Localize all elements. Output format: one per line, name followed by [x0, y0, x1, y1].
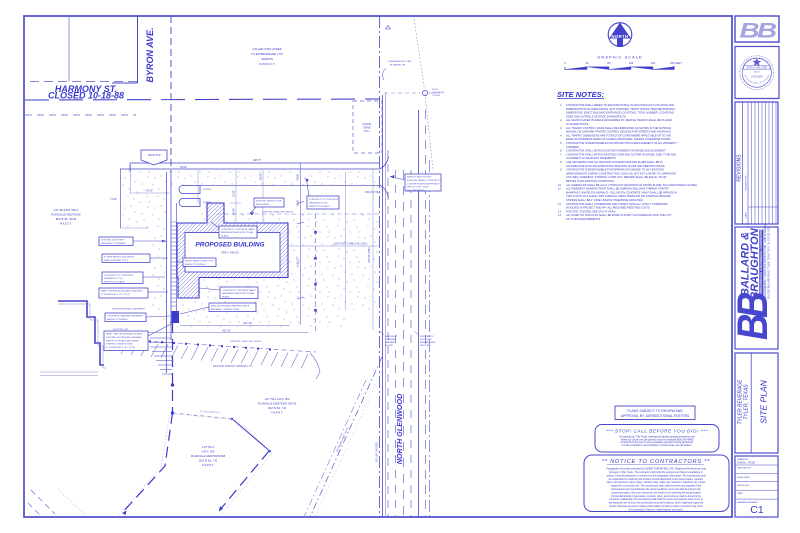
svg-text:REFER TO DETAILS: REFER TO DETAILS: [185, 263, 206, 266]
svg-text:PLAINVILLE ADDITIONS UNIT B: PLAINVILLE ADDITIONS UNIT B: [258, 402, 297, 406]
svg-text:DATE: DATE: [737, 492, 743, 495]
svg-text:BLK B, BL, 500-B: BLK B, BL, 500-B: [56, 217, 77, 221]
svg-text:STRIPE: STRIPE: [203, 189, 211, 191]
svg-text:EXISTING FENCE TO BE: EXISTING FENCE TO BE: [256, 201, 282, 203]
svg-text:PAVEMENT (TYP.): PAVEMENT (TYP.): [104, 277, 123, 280]
svg-text:BETTER THAN EXISTING CONDITION: BETTER THAN EXISTING CONDITIONS.: [566, 179, 615, 183]
svg-text:547.2: 547.2: [364, 131, 370, 133]
svg-text:*** STOP! CALL BEFORE YOU: *** STOP! CALL BEFORE YOU DIG! ***: [606, 429, 708, 434]
svg-text:ALIGNMENT AT ADJACENT PAVEMENT: ALIGNMENT AT ADJACENT PAVEMENTS.: [565, 156, 617, 160]
svg-text:SAWCUT AND TIE INTO: SAWCUT AND TIE INTO: [407, 176, 432, 179]
svg-text:discrepancies are found betwee: discrepancies are found between the actu…: [611, 488, 701, 491]
svg-text:REFER TO DETAILS AND PAINT: REFER TO DETAILS AND PAINT: [106, 339, 139, 342]
svg-text:REQUIREMENTS: REQUIREMENTS: [407, 190, 425, 192]
svg-text:12.: 12.: [558, 202, 562, 206]
svg-text:SIZES AND OUTFALLS OF ROOF DOW: SIZES AND OUTFALLS OF ROOF DOWNSPOUTS.: [566, 114, 627, 118]
svg-text:CONSTRUCT CONCRETE RAMP: CONSTRUCT CONCRETE RAMP: [222, 289, 256, 292]
svg-text:FOR SITE UTILITIES, SEE UTILIT: FOR SITE UTILITIES, SEE UTILITY PLAN.: [566, 209, 616, 213]
svg-text:CALLED 5.952 ACRES: CALLED 5.952 ACRES: [253, 47, 282, 51]
svg-text:CONCRETE DRIVE APPROACH: CONCRETE DRIVE APPROACH: [407, 182, 440, 185]
svg-text:POLE: POLE: [432, 89, 438, 91]
svg-text:PLANS SUBJECT TO REVIEW AND: PLANS SUBJECT TO REVIEW AND: [627, 409, 683, 413]
svg-text:EXISTING PAVING. CONSTRUCT: EXISTING PAVING. CONSTRUCT: [407, 179, 441, 182]
svg-text:142.16': 142.16': [296, 257, 300, 266]
svg-text:CONSTRUCT 6" CONCRETE: CONSTRUCT 6" CONCRETE: [104, 275, 134, 277]
svg-text:ACCORDANCE WITH ARCHITECTURAL: ACCORDANCE WITH ARCHITECTURAL BUILDING P…: [565, 164, 666, 168]
svg-text:CONSTRUCT CONCRETE RAMP: CONSTRUCT CONCRETE RAMP: [221, 228, 255, 231]
svg-text:16.00': 16.00': [296, 199, 300, 206]
svg-text:ALL TRAFFIC DIMENSIONS ARE TO: ALL TRAFFIC DIMENSIONS ARE TO BACK OF CU…: [565, 133, 671, 137]
svg-text:GRAPHIC SCALE: GRAPHIC SCALE: [597, 55, 642, 60]
svg-text:JASON L. ROSS: JASON L. ROSS: [737, 462, 755, 465]
svg-text:T-POLE: T-POLE: [432, 95, 440, 97]
svg-text:120: 120: [629, 61, 634, 65]
svg-text:ALL SIDEWALKS SHALL BE A.D.A.: ALL SIDEWALKS SHALL BE A.D.A. COMPLIANT …: [565, 183, 698, 187]
svg-text:11.: 11.: [558, 187, 562, 191]
svg-text:DRIVE: DRIVE: [363, 128, 370, 130]
svg-text:445.5': 445.5': [253, 158, 262, 162]
svg-text:TWO COATS TO A CLEAN, DRY SURF: TWO COATS TO A CLEAN, DRY SURFACE USING …: [566, 194, 672, 198]
svg-text:PROPOSED 10': PROPOSED 10': [420, 336, 434, 338]
svg-text:TRASH PAD: TRASH PAD: [148, 154, 161, 157]
svg-text:4469/745: 4469/745: [261, 57, 273, 61]
svg-text:FFE = 546.50: FFE = 546.50: [221, 251, 238, 255]
svg-text:GRAVEL: GRAVEL: [362, 123, 372, 126]
svg-text:ALL TRAFFIC CONTROL SIGNS SHAL: ALL TRAFFIC CONTROL SIGNS SHALL BE FABRI…: [565, 126, 672, 130]
svg-text:BLK B, BL, 7-B: BLK B, BL, 7-B: [268, 406, 286, 410]
svg-text:be responsible for confirming: be responsible for confirming the locati…: [609, 478, 704, 481]
svg-text:4.: 4.: [560, 133, 562, 137]
svg-text:14.: 14.: [558, 213, 562, 217]
svg-text:JOHN A. BALLARD: JOHN A. BALLARD: [746, 67, 767, 70]
svg-text:METAL MAZE COVER (TYP): METAL MAZE COVER (TYP): [185, 260, 214, 263]
svg-text:CONTRACTOR SHALL MATCH EXISTIN: CONTRACTOR SHALL MATCH EXISTING PAVEMENT…: [566, 149, 666, 153]
svg-text:REFER TO DETAILS: REFER TO DETAILS: [104, 281, 125, 284]
svg-text:2.: 2.: [559, 118, 562, 122]
svg-text:MARKPAST, WHITE (ON ASPHALT),: MARKPAST, WHITE (ON ASPHALT), YELLOW ON …: [566, 190, 677, 194]
svg-text:433.41': 433.41': [222, 328, 232, 332]
svg-text:4" WIDE REFLECTIVE WHITE: 4" WIDE REFLECTIVE WHITE: [104, 256, 135, 259]
svg-text:LOT 4B S.B.B. 500-A: LOT 4B S.B.B. 500-A: [54, 208, 79, 212]
svg-text:IN GUARD POSTS.: IN GUARD POSTS.: [566, 122, 589, 126]
svg-text:EXISTING CURB LINE (TYP.): EXISTING CURB LINE (TYP.): [334, 243, 367, 246]
svg-text:DATE: DATE: [744, 212, 747, 218]
svg-text:PER PLAT: PER PLAT: [420, 344, 430, 347]
svg-text:UTILITIES, PAVEMENT, STRIPING,: UTILITIES, PAVEMENT, STRIPING, CURB, ETC…: [566, 175, 667, 179]
svg-text:Topographic information provid: Topographic information provided by SUMM…: [606, 468, 706, 471]
svg-text:CONTRACTOR SHALL MATCH EXISTIN: CONTRACTOR SHALL MATCH EXISTING CURB AND…: [566, 152, 676, 156]
svg-text:10.: 10.: [558, 183, 562, 187]
svg-text:A PROFESSIONAL ENGINEERING COR: A PROFESSIONAL ENGINEERING CORPORATION: [759, 228, 763, 297]
svg-text:EXISTING CONCRETE: EXISTING CONCRETE: [101, 240, 125, 242]
svg-text:SIDEWALK ESMT: SIDEWALK ESMT: [420, 341, 436, 344]
svg-text:5.: 5.: [560, 141, 562, 145]
svg-text:8.: 8.: [560, 160, 562, 164]
svg-text:BYRON AVE.: BYRON AVE.: [145, 27, 155, 82]
svg-text:THE CENTERING FOR ALL BUILDING: THE CENTERING FOR ALL BUILDING FOUNDATIO…: [566, 160, 663, 164]
svg-text:STRIPES SHALL BE 4" WIDE UNLES: STRIPES SHALL BE 4" WIDE UNLESS OTHERWIS…: [566, 198, 644, 202]
svg-text:EXISTING ASPHALT PARKING LOT: EXISTING ASPHALT PARKING LOT: [213, 365, 253, 368]
svg-text:PAVEMENT TO REMAIN: PAVEMENT TO REMAIN: [101, 242, 126, 245]
svg-text:LICENSED: LICENSED: [751, 76, 763, 79]
svg-text:EXISTING ASPHALT PAVEMENT: EXISTING ASPHALT PAVEMENT: [112, 308, 146, 311]
svg-text:DIMENSIONS OF SLOPED PAVING, E: DIMENSIONS OF SLOPED PAVING, EXIT PORCHE…: [566, 107, 675, 111]
svg-text:REVISIONS: REVISIONS: [737, 154, 743, 182]
svg-text:discrepancies are found on the: discrepancies are found on the construct…: [609, 502, 704, 505]
svg-text:ALL WORK ON THIS PLAN SHALL BE: ALL WORK ON THIS PLAN SHALL BE DONE IN S…: [565, 213, 672, 217]
svg-text:INVOLVED IN PROJECT AND PAY AL: INVOLVED IN PROJECT AND PAY ALL REQUIRED…: [566, 206, 651, 210]
svg-text:ISSUE DATE: ISSUE DATE: [737, 476, 750, 479]
svg-text:1.: 1.: [560, 103, 562, 107]
svg-text:45.00': 45.00': [146, 190, 153, 193]
svg-text:CHECKED BY: CHECKED BY: [737, 468, 752, 470]
svg-text:JOB 06-045: JOB 06-045: [737, 485, 749, 487]
svg-text:CLOSED 10-18-88: CLOSED 10-18-88: [48, 91, 124, 101]
svg-text:PLANS: PLANS: [222, 296, 230, 299]
svg-text:4" STRIPES AT 2' O.C. (TYP.): 4" STRIPES AT 2' O.C. (TYP.): [106, 346, 135, 349]
svg-text:PAINT STRIPED ACCESSIBLE WALKI: PAINT STRIPED ACCESSIBLE WALKING: [101, 290, 143, 293]
svg-text:IN GRAVEL DR.: IN GRAVEL DR.: [390, 64, 406, 67]
svg-text:DIMENSIONS, EXACT BUILDING ENT: DIMENSIONS, EXACT BUILDING ENTRANCE LOCA…: [566, 111, 675, 115]
svg-text:PLAINVILLE ADDITIONS B-B: PLAINVILLE ADDITIONS B-B: [191, 454, 226, 458]
svg-text:SITE PLAN: SITE PLAN: [759, 379, 769, 423]
svg-text:REFER TO DETAILS: REFER TO DETAILS: [309, 205, 330, 208]
svg-text:STRIPE: STRIPE: [203, 202, 211, 204]
svg-text:ALL SIGNS PLACED IN AREAS ACCE: ALL SIGNS PLACED IN AREAS ACCESSIBLE BY …: [565, 118, 672, 122]
svg-text:C1: C1: [750, 504, 764, 516]
svg-text:& INSTALL ACCESSIBLE SIGNAGE: & INSTALL ACCESSIBLE SIGNAGE: [106, 336, 142, 339]
svg-text:PAVEMENT (TYP.): PAVEMENT (TYP.): [309, 202, 328, 205]
svg-text:CONSTRUCT ASPHALT PAVEMENT: CONSTRUCT ASPHALT PAVEMENT: [107, 315, 144, 318]
svg-text:4" STRIPES AT 2' O.C. (TYP.): 4" STRIPES AT 2' O.C. (TYP.): [101, 293, 130, 296]
svg-text:160: 160: [651, 61, 656, 65]
svg-text:RELOCATED: RELOCATED: [256, 203, 270, 206]
svg-text:447.35': 447.35': [243, 321, 253, 325]
svg-text:CONSTRUCT 6" CONCRETE: CONSTRUCT 6" CONCRETE: [309, 199, 339, 201]
svg-text:NORTH GLENWOOD: NORTH GLENWOOD: [395, 394, 404, 465]
svg-text:LOT 7R-1 A.R.A. 500: LOT 7R-1 A.R.A. 500: [265, 397, 290, 401]
svg-text:BLK B, BL, 7-B: BLK B, BL, 7-B: [199, 459, 217, 463]
svg-text:PAINT "VAN" ACCESSIBLE SYMBOL: PAINT "VAN" ACCESSIBLE SYMBOL: [106, 333, 144, 336]
svg-text:P.A.R.R.T.: P.A.R.R.T.: [271, 411, 283, 415]
svg-text:7.: 7.: [560, 152, 562, 156]
svg-text:REFER TO DETAILS: REFER TO DETAILS: [107, 318, 128, 321]
svg-text:OVERHEAD ELECTRIC: OVERHEAD ELECTRIC: [388, 60, 412, 63]
svg-text:CL ASPHALT: CL ASPHALT: [385, 338, 397, 341]
svg-text:CONTRACTOR IS RESPONSIBLE FOR: CONTRACTOR IS RESPONSIBLE FOR REPAIRS OF…: [566, 168, 664, 172]
svg-text:STRIPED LOADING ZONE: STRIPED LOADING ZONE: [106, 343, 133, 346]
svg-text:pipes, and structures (storm s: pipes, and structures (storm sewer, sani…: [606, 481, 706, 484]
svg-text:It is the contractor's respons: It is the contractor's responsibility to…: [622, 444, 693, 447]
svg-text:200 FEET: 200 FEET: [670, 61, 682, 65]
svg-text:MANUAL ON UNIFORM TRAFFIC CONT: MANUAL ON UNIFORM TRAFFIC CONTROL DEVICE…: [566, 130, 672, 134]
svg-text:16.00': 16.00': [233, 208, 236, 215]
svg-text:PLANS: PLANS: [221, 235, 229, 238]
svg-text:EXISTING CHAIN LINK FENCE: EXISTING CHAIN LINK FENCE: [230, 340, 262, 343]
svg-text:40' ROW: 40' ROW: [385, 344, 393, 347]
svg-text:71.08': 71.08': [110, 198, 117, 201]
svg-text:EXISTING CHAIN LINK FENCE: EXISTING CHAIN LINK FENCE: [262, 211, 294, 214]
svg-text:CORNERS.: CORNERS.: [566, 145, 580, 149]
svg-text:9.: 9.: [560, 168, 562, 172]
svg-text:impact the construction site.: impact the construction site. The contra…: [611, 485, 702, 488]
svg-text:IMPROVEMENTS DURING CONSTRUCTI: IMPROVEMENTS DURING CONSTRUCTION, SUCH A…: [566, 171, 677, 175]
svg-text:O.P.R.S.C.T.: O.P.R.S.C.T.: [259, 62, 275, 66]
svg-text:CONTRACTOR SHALL COORDINATE AN: CONTRACTOR SHALL COORDINATE AND COMPLY W…: [566, 202, 668, 206]
svg-text:P.A.R.R.T.: P.A.R.R.T.: [202, 463, 214, 467]
svg-text:PAINT STRIPING (TYP.): PAINT STRIPING (TYP.): [104, 259, 128, 262]
svg-text:(horizontal/vertical) of said: (horizontal/vertical) of said cables, co…: [611, 495, 701, 498]
svg-text:project. Engineer and owner s: project. Engineer and owner shall be ind…: [608, 505, 703, 508]
svg-text:CONTRACTOR SHALL REFER TO ARCH: CONTRACTOR SHALL REFER TO ARCHITECTURAL …: [566, 103, 674, 107]
svg-text:(R.O.W. VARIES): (R.O.W. VARIES): [375, 442, 379, 462]
svg-text:TXU 138142: TXU 138142: [432, 92, 445, 94]
svg-text:OF TYLER REQUIREMENTS.: OF TYLER REQUIREMENTS.: [566, 217, 601, 221]
svg-text:BB: BB: [729, 292, 777, 340]
svg-text:UTILITY AND: UTILITY AND: [420, 338, 432, 341]
svg-text:PLAINVILLE ADDITIONS: PLAINVILLE ADDITIONS: [51, 213, 81, 217]
svg-text:PAVEMENT: PAVEMENT: [385, 341, 396, 344]
svg-text:CONTRACTOR IS RESPONSIBLE FOR: CONTRACTOR IS RESPONSIBLE FOR PROTECTION…: [566, 141, 678, 145]
svg-text:35.00': 35.00': [180, 166, 187, 169]
svg-text:NORTH: NORTH: [612, 34, 629, 39]
svg-text:REFERENCE ARCHITECTURAL: REFERENCE ARCHITECTURAL: [221, 231, 254, 234]
svg-text:AND ADA - LOADING ZONE: AND ADA - LOADING ZONE: [210, 308, 240, 311]
svg-text:LOT 7R-A: LOT 7R-A: [202, 445, 214, 449]
svg-text:CIVIL ENGINEERING - LANDSCAPE: CIVIL ENGINEERING - LANDSCAPE ARCHITECTU…: [764, 224, 767, 302]
svg-text:64674: 64674: [754, 72, 761, 74]
svg-text:EDGE OF PAVEMENT WHEN NO CURB: EDGE OF PAVEMENT WHEN NO CURB IS PROPOSE…: [566, 137, 671, 141]
svg-text:from contractor's failure to n: from contractor's failure to notify engi…: [629, 508, 684, 511]
svg-text:160.16' (TPL): 160.16' (TPL): [367, 247, 371, 263]
svg-text:SITE NOTES:: SITE NOTES:: [557, 90, 605, 99]
svg-text:P.A.S.S.T.: P.A.S.S.T.: [60, 222, 72, 226]
svg-text:45.00': 45.00': [296, 173, 300, 180]
svg-text:BB: BB: [740, 19, 777, 43]
svg-text:TYLER BEVERAGE, LTD.: TYLER BEVERAGE, LTD.: [251, 52, 284, 56]
svg-text:Surveyors, Tyler, Texas. The: Surveyors, Tyler, Texas. The contractor …: [609, 471, 703, 474]
svg-text:construction plans. Any costs: construction plans. Any costs incurred a…: [611, 491, 701, 494]
svg-text:PER CITY OF TYLER: PER CITY OF TYLER: [407, 187, 429, 189]
svg-text:3016 OLD BULLARD ROAD, TYLER,: 3016 OLD BULLARD ROAD, TYLER, TEXAS 7570…: [768, 226, 771, 299]
svg-text:writing, of any discrepancies: writing, of any discrepancies or omissio…: [607, 474, 706, 477]
svg-text:REFERENCE ARCHITECTURAL: REFERENCE ARCHITECTURAL: [222, 292, 255, 295]
svg-text:A.R.A. 500: A.R.A. 500: [201, 450, 215, 454]
svg-text:ALL PAVEMENT MARKING PAINT SHA: ALL PAVEMENT MARKING PAINT SHALL BE SHER…: [565, 187, 669, 191]
svg-text:** NOTICE TO CONTRACTORS: ** NOTICE TO CONTRACTORS **: [602, 459, 710, 465]
svg-text:3.: 3.: [560, 126, 562, 130]
svg-text:TYLER, TEXAS: TYLER, TEXAS: [744, 384, 750, 420]
svg-text:6.: 6.: [560, 149, 562, 153]
svg-text:contractor. Additionally, the: contractor. Additionally, the contractor…: [609, 498, 703, 501]
svg-text:DESCRIPTION: DESCRIPTION: [745, 175, 747, 190]
svg-text:13.: 13.: [558, 209, 562, 213]
svg-text:45.00': 45.00': [260, 173, 263, 180]
svg-text:EXISTING 24': EXISTING 24': [385, 335, 397, 338]
svg-text:ADA - ACCESSIBLE PARKING SPACE: ADA - ACCESSIBLE PARKING SPACE: [210, 305, 250, 308]
svg-text:APPROVAL BY JURISDICTIONAL ENT: APPROVAL BY JURISDICTIONAL ENTITIES: [621, 414, 690, 418]
svg-text:31.00': 31.00': [233, 190, 236, 197]
svg-text:449.16' (TPL): 449.16' (TPL): [365, 191, 380, 194]
svg-text:PROPOSED BUILDING: PROPOSED BUILDING: [196, 242, 265, 249]
